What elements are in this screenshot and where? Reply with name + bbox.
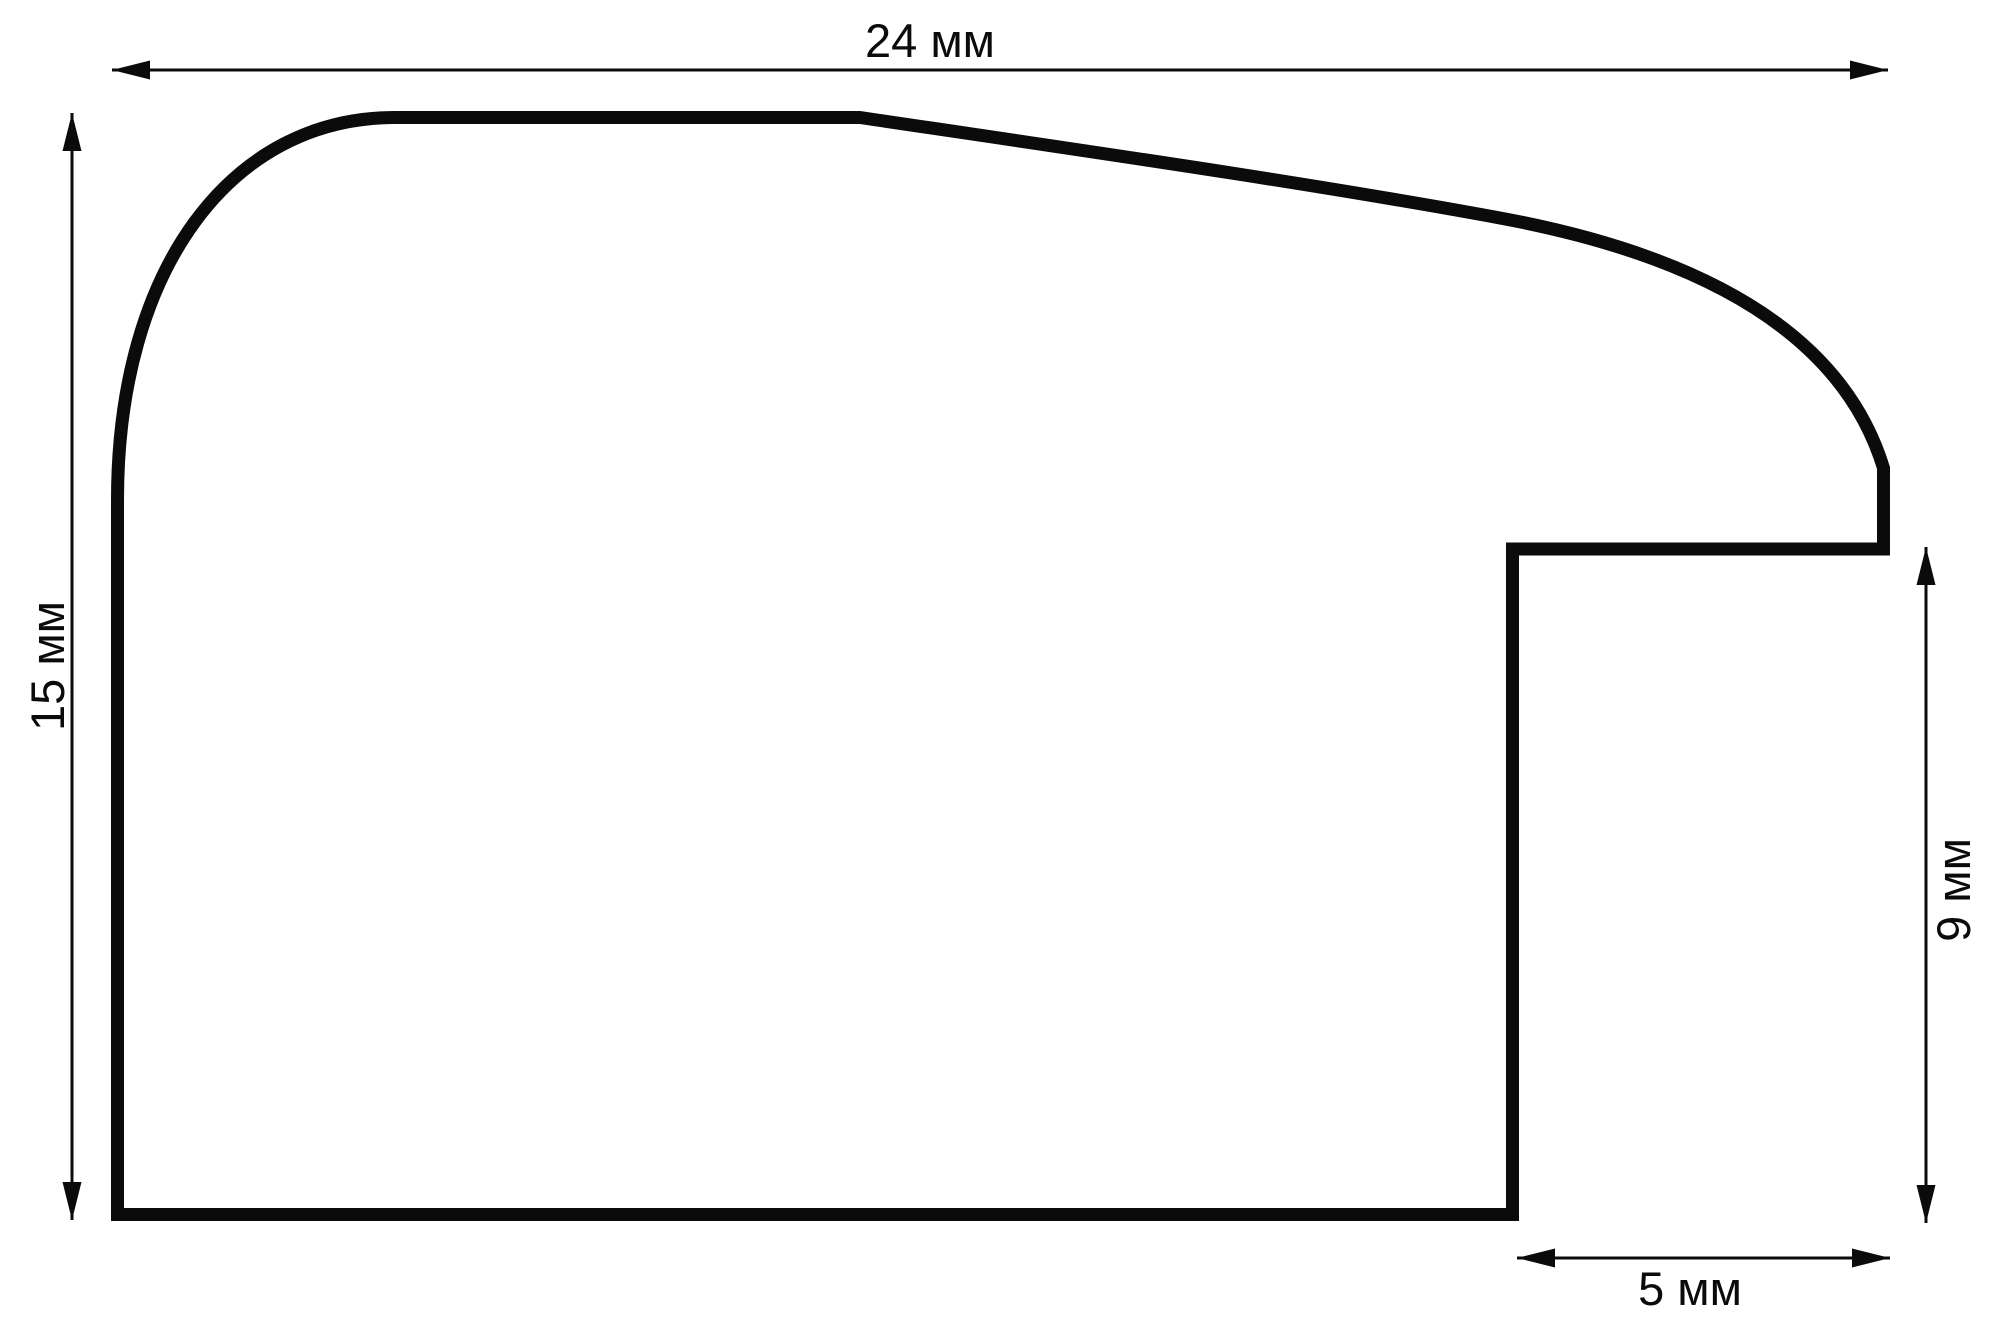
- technical-drawing-canvas: 24 мм 15 мм 9 мм 5 мм: [0, 0, 2000, 1333]
- arrowhead-right-icon: [1850, 61, 1888, 80]
- arrowhead-down-icon: [63, 1182, 82, 1220]
- technical-drawing-page: 24 мм 15 мм 9 мм 5 мм: [0, 0, 2000, 1333]
- dimension-overall-height: 15 мм: [21, 113, 82, 1220]
- arrowhead-up-icon: [63, 113, 82, 151]
- arrowhead-left-icon: [112, 61, 150, 80]
- dimension-label-height: 15 мм: [21, 601, 74, 731]
- dimension-label-rabbet-width: 5 мм: [1638, 1262, 1742, 1315]
- dimension-label-width: 24 мм: [865, 14, 995, 67]
- arrowhead-right-icon: [1852, 1249, 1890, 1268]
- dimension-overall-width: 24 мм: [112, 14, 1888, 80]
- arrowhead-up-icon: [1917, 547, 1936, 585]
- moulding-profile-outline: [118, 118, 1884, 1215]
- arrowhead-down-icon: [1917, 1185, 1936, 1223]
- dimension-label-rabbet-depth: 9 мм: [1927, 838, 1980, 942]
- arrowhead-left-icon: [1517, 1249, 1555, 1268]
- dimension-rabbet-width: 5 мм: [1517, 1249, 1890, 1316]
- dimension-rabbet-depth: 9 мм: [1917, 547, 1981, 1223]
